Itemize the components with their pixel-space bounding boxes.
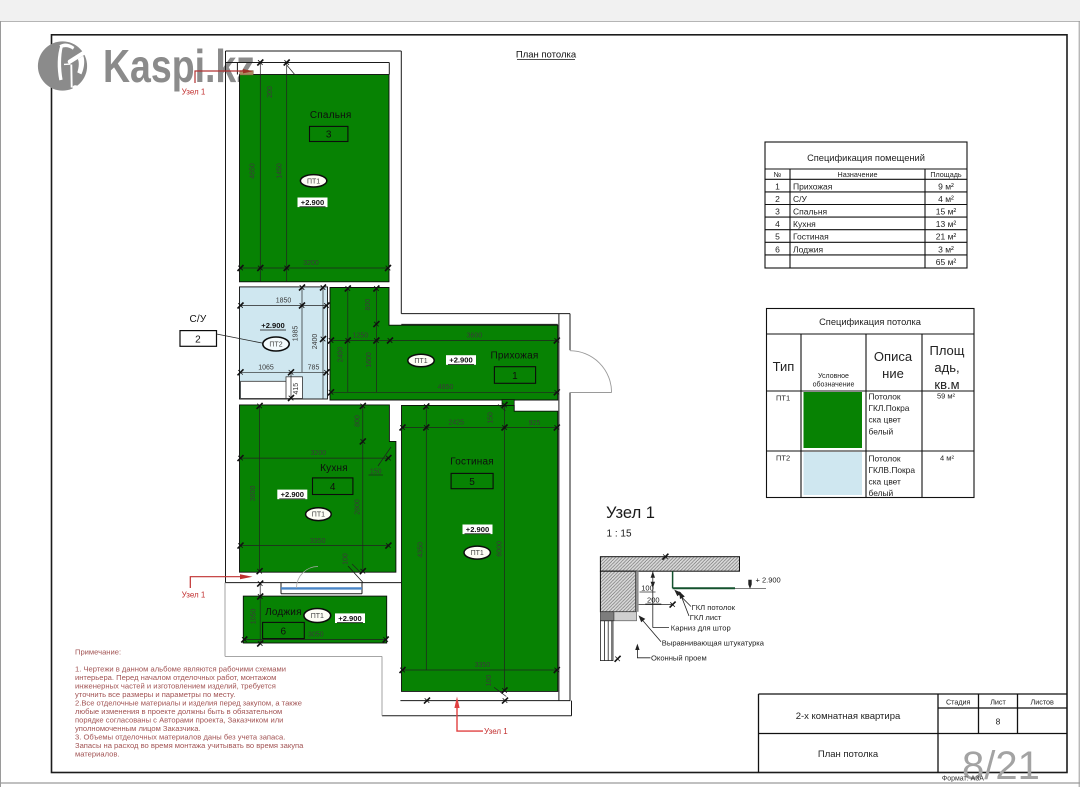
svg-text:Kaspi.kz: Kaspi.kz [103,40,255,92]
svg-text:ска цвет: ска цвет [869,415,902,425]
svg-text:С/У: С/У [190,314,207,325]
svg-text:150: 150 [488,412,495,424]
svg-text:Гостиная: Гостиная [450,457,494,468]
svg-text:ПТ2: ПТ2 [269,342,282,349]
svg-text:кв.м: кв.м [934,377,959,392]
svg-text:Лоджия: Лоджия [793,244,824,254]
svg-text:3: 3 [326,130,332,141]
svg-text:Лист: Лист [990,698,1006,707]
svg-text:1: 1 [775,181,780,191]
svg-text:785: 785 [308,364,320,371]
svg-text:Оконный проем: Оконный проем [651,654,707,663]
svg-text:1065: 1065 [258,364,274,371]
svg-text:Кухня: Кухня [320,463,348,474]
svg-text:800: 800 [355,415,362,427]
svg-text:+2.900: +2.900 [301,198,324,207]
svg-text:ние: ние [882,366,904,381]
svg-text:3: 3 [775,207,780,217]
svg-text:ПТ1: ПТ1 [312,512,325,519]
svg-text:1450: 1450 [277,163,284,179]
svg-text:2: 2 [195,334,201,345]
svg-text:925: 925 [529,420,541,427]
svg-text:+2.900: +2.900 [449,356,472,365]
svg-text:Площадь: Площадь [930,170,962,179]
svg-text:Формат: А3А: Формат: А3А [942,776,984,783]
svg-text:№: № [774,170,782,179]
svg-text:Назначение: Назначение [838,170,878,179]
svg-text:ска цвет: ска цвет [869,477,902,487]
svg-text:6: 6 [281,627,287,638]
svg-text:Тип: Тип [773,359,795,374]
svg-text:3 м²: 3 м² [938,244,954,254]
svg-text:Прихожая: Прихожая [491,350,539,361]
svg-text:5: 5 [775,232,780,242]
svg-text:ПТ1: ПТ1 [307,178,320,185]
svg-text:5: 5 [469,477,475,488]
svg-text:4 м²: 4 м² [938,194,954,204]
svg-text:150: 150 [370,469,382,476]
svg-text:+2.900: +2.900 [466,525,489,534]
svg-text:План потолка: План потолка [516,50,577,61]
svg-text:4650: 4650 [250,163,257,179]
svg-text:ГКЛ.Покра: ГКЛ.Покра [869,403,910,413]
svg-text:Спецификация потолка: Спецификация потолка [819,317,922,327]
svg-text:1985: 1985 [293,326,300,342]
svg-text:100: 100 [641,584,654,593]
svg-text:3350: 3350 [475,662,491,669]
svg-text:Спецификация помещений: Спецификация помещений [807,153,925,163]
svg-text:адь,: адь, [934,360,959,375]
svg-text:ГКЛ лист: ГКЛ лист [690,613,722,622]
svg-text:2800: 2800 [354,499,361,515]
svg-text:Узел 1: Узел 1 [606,504,655,522]
svg-text:200: 200 [267,86,274,98]
svg-text:Карниз для штор: Карниз для штор [671,623,731,632]
svg-text:Лоджия: Лоджия [265,607,302,618]
svg-text:+2.900: +2.900 [338,614,361,623]
svg-text:Потолок: Потолок [869,454,901,464]
svg-text:3350: 3350 [310,538,326,545]
svg-text:6: 6 [775,244,780,254]
svg-text:Прихожая: Прихожая [793,181,833,191]
svg-text:4: 4 [330,482,336,493]
svg-text:200: 200 [647,596,660,605]
svg-text:4: 4 [775,219,780,229]
svg-text:3200: 3200 [311,450,327,457]
svg-text:Условное: Условное [818,373,849,380]
svg-text:обозначение: обозначение [813,381,855,389]
svg-text:59 м²: 59 м² [937,392,956,401]
svg-text:8: 8 [996,717,1001,727]
svg-text:Спальня: Спальня [310,110,352,121]
svg-text:13 м²: 13 м² [936,219,957,229]
svg-text:материалов.: материалов. [75,750,119,759]
svg-text:Узел 1: Узел 1 [182,88,206,97]
svg-text:21 м²: 21 м² [936,232,957,242]
svg-text:+ 2.900: + 2.900 [756,576,781,585]
svg-text:ГКЛВ.Покра: ГКЛВ.Покра [869,465,916,475]
svg-text:Примечание:: Примечание: [75,648,121,657]
svg-text:Стадия: Стадия [946,698,971,707]
svg-text:Гостиная: Гостиная [793,232,829,242]
svg-text:1850: 1850 [276,298,292,305]
svg-text:Узел 1: Узел 1 [484,727,508,736]
svg-text:1600: 1600 [366,352,373,368]
svg-text:Описа: Описа [874,349,913,364]
svg-text:1250: 1250 [353,333,369,340]
svg-text:ГКЛ потолок: ГКЛ потолок [692,603,736,612]
svg-text:3600: 3600 [467,333,483,340]
svg-text:Площ: Площ [929,343,964,358]
svg-text:4 м²: 4 м² [940,454,954,463]
svg-text:ПТ1: ПТ1 [776,394,790,403]
svg-text:65 м²: 65 м² [936,257,957,267]
svg-text:800: 800 [365,299,372,311]
svg-text:2400: 2400 [312,334,319,350]
svg-text:+2.900: +2.900 [261,321,284,330]
svg-text:ПТ1: ПТ1 [471,550,484,557]
svg-text:1 : 15: 1 : 15 [607,529,632,540]
svg-text:3200: 3200 [303,260,319,267]
svg-text:белый: белый [869,488,894,498]
svg-text:Кухня: Кухня [793,219,816,229]
svg-text:ПТ1: ПТ1 [414,358,427,365]
svg-text:3050: 3050 [308,631,324,638]
svg-text:С/У: С/У [793,194,808,204]
svg-text:415: 415 [293,383,300,395]
svg-text:2: 2 [775,194,780,204]
svg-text:1050: 1050 [250,609,257,625]
svg-text:Листов: Листов [1031,698,1055,707]
svg-text:100: 100 [343,553,350,565]
svg-text:+2.900: +2.900 [281,490,304,499]
svg-text:2400: 2400 [338,347,345,363]
svg-text:ПТ2: ПТ2 [776,454,790,463]
svg-text:15 м²: 15 м² [936,207,957,217]
svg-text:белый: белый [869,426,894,436]
svg-text:Потолок: Потолок [869,392,901,402]
svg-text:9 м²: 9 м² [938,181,954,191]
svg-text:2-х комнатная квартира: 2-х комнатная квартира [796,711,901,722]
svg-text:1: 1 [512,371,518,382]
svg-text:ПТ1: ПТ1 [311,613,324,620]
svg-text:4850: 4850 [438,384,454,391]
svg-text:4350: 4350 [418,542,425,558]
svg-text:100: 100 [486,675,493,687]
svg-text:Выравнивающая штукатурка: Выравнивающая штукатурка [662,638,765,647]
svg-text:6000: 6000 [497,541,504,557]
svg-text:Спальня: Спальня [793,207,828,217]
svg-text:Узел 1: Узел 1 [182,591,206,600]
svg-text:2425: 2425 [449,420,465,427]
svg-text:3800: 3800 [250,486,257,502]
svg-text:План потолка: План потолка [818,749,879,760]
